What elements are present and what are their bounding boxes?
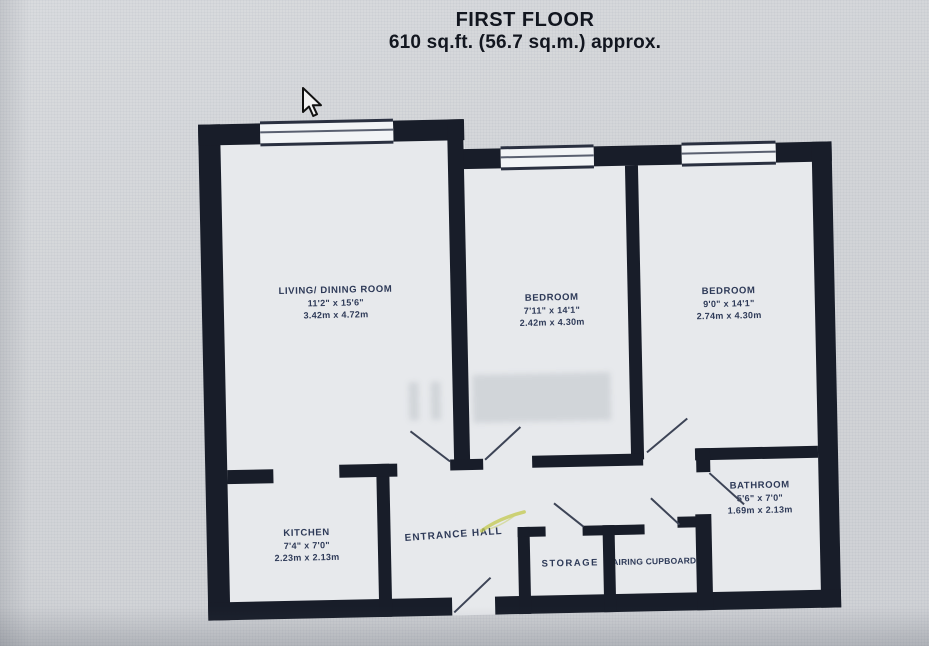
window-bedroom-1: [501, 144, 594, 170]
wall-outer-top-living-a: [198, 123, 260, 145]
window-living: [260, 119, 393, 147]
wall-outer-bottom-left: [208, 597, 452, 620]
wall-storage-left-stub: [517, 527, 545, 538]
room-label-bedroom-2: BEDROOM 9'0" x 14'1" 2.74m x 4.30m: [639, 284, 820, 324]
wall-outer-top-bedrooms-a: [462, 148, 501, 169]
wall-airing-bathroom-left: [695, 514, 713, 610]
plan-header: FIRST FLOOR 610 sq.ft. (56.7 sq.m.) appr…: [120, 8, 929, 54]
floor-plan: LIVING/ DINING ROOM 11'2" x 15'6" 3.42m …: [0, 0, 929, 646]
wall-hall-living: [339, 464, 397, 478]
window-bedroom-2: [681, 141, 775, 167]
wall-hall-center-stub: [450, 459, 483, 471]
wall-bathroom-door-stub: [696, 448, 710, 472]
wall-storage-airing-divider: [602, 525, 616, 612]
room-label-living-dining: LIVING/ DINING ROOM 11'2" x 15'6" 3.42m …: [225, 283, 446, 324]
watermark-artifact: [472, 372, 611, 423]
plan-area-text: 610 sq.ft. (56.7 sq.m.) approx.: [120, 32, 929, 54]
plan-title: FIRST FLOOR: [120, 8, 929, 32]
wall-storage-left: [517, 527, 531, 614]
floor-plan-photo: FIRST FLOOR 610 sq.ft. (56.7 sq.m.) appr…: [0, 0, 929, 646]
room-name: AIRING CUPBOARD: [604, 554, 704, 568]
wall-outer-top-bedrooms-b: [594, 145, 682, 167]
wall-hall-bedroom1: [532, 453, 643, 467]
wall-kitchen-stub: [227, 469, 273, 484]
watermark-artifact: [430, 382, 441, 420]
room-label-bedroom-1: BEDROOM 7'11" x 14'1" 2.42m x 4.30m: [462, 290, 643, 330]
room-label-airing-cupboard: AIRING CUPBOARD: [604, 554, 704, 568]
wall-bathroom-top: [695, 446, 818, 461]
watermark-artifact: [408, 382, 419, 420]
